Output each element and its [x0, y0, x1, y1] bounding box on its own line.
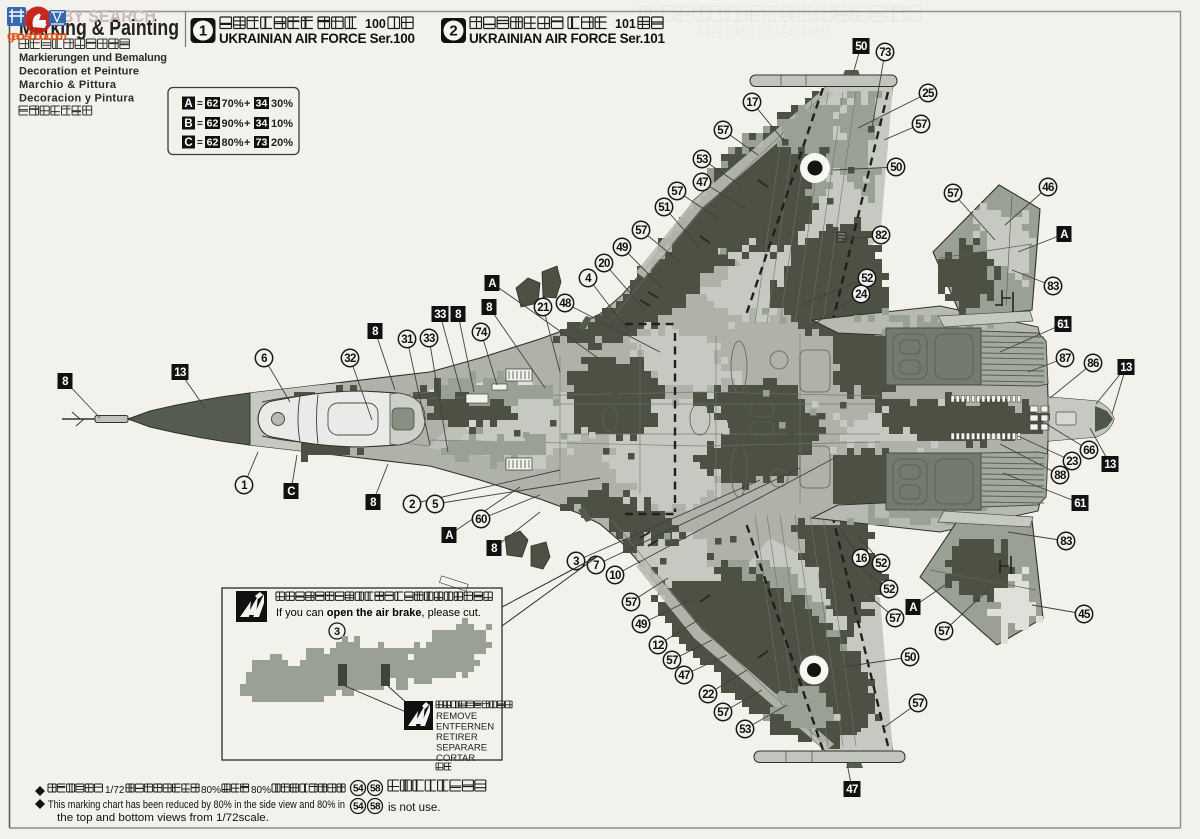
svg-text:B: B [184, 118, 192, 130]
svg-text:87: 87 [1059, 353, 1071, 365]
svg-text:C: C [287, 486, 295, 498]
svg-text:57: 57 [671, 186, 683, 198]
svg-text:This marking chart has been re: This marking chart has been reduced by 8… [48, 799, 345, 811]
svg-text:32: 32 [344, 353, 356, 365]
svg-text:25: 25 [922, 88, 935, 100]
svg-text:57: 57 [889, 613, 901, 625]
svg-text:31: 31 [401, 334, 414, 346]
svg-text:Decoration et Peinture: Decoration et Peinture [19, 66, 139, 78]
svg-text:48: 48 [559, 298, 572, 310]
svg-text:61: 61 [1074, 498, 1087, 510]
svg-text:57: 57 [938, 626, 950, 638]
svg-text:66: 66 [1083, 445, 1095, 457]
svg-text:UKRAINIAN AIR FORCE Ser.101: UKRAINIAN AIR FORCE Ser.101 [469, 31, 665, 46]
svg-text:50: 50 [890, 162, 902, 174]
svg-text:Marchio & Pittura: Marchio & Pittura [19, 79, 117, 91]
svg-text:52: 52 [875, 558, 887, 570]
svg-text:47: 47 [678, 670, 690, 682]
svg-text:58: 58 [370, 802, 381, 813]
svg-text:gao-shou.com: gao-shou.com [7, 29, 67, 43]
svg-text:10%: 10% [271, 118, 293, 130]
svg-text:+: + [244, 98, 250, 110]
svg-text:47: 47 [846, 784, 858, 796]
svg-text:34: 34 [256, 118, 268, 130]
svg-text:86: 86 [1087, 358, 1099, 370]
svg-text:+: + [244, 137, 250, 149]
svg-text:13: 13 [1120, 362, 1132, 374]
svg-text:12: 12 [652, 640, 664, 652]
svg-text:UKRAINIAN AIR FORCE Ser.100: UKRAINIAN AIR FORCE Ser.100 [219, 31, 415, 46]
svg-text:52: 52 [883, 584, 895, 596]
svg-text:22: 22 [702, 689, 714, 701]
svg-text:88: 88 [1054, 470, 1067, 482]
svg-text:54: 54 [353, 802, 364, 813]
svg-text:33: 33 [434, 309, 446, 321]
svg-text:82: 82 [875, 230, 887, 242]
svg-text:16: 16 [855, 553, 867, 565]
svg-text:45: 45 [1078, 609, 1091, 621]
svg-text:57: 57 [912, 698, 924, 710]
svg-text:49: 49 [616, 242, 628, 254]
svg-text:If you can open the air brake,: If you can open the air brake, please cu… [276, 607, 481, 619]
svg-text:50: 50 [904, 652, 916, 664]
svg-text:24: 24 [855, 289, 868, 301]
svg-text:=: = [197, 99, 203, 110]
svg-text:Decoracion y Pintura: Decoracion y Pintura [19, 93, 135, 105]
svg-text:53: 53 [696, 154, 708, 166]
svg-text:CORTAR: CORTAR [436, 753, 475, 764]
svg-text:20: 20 [598, 258, 610, 270]
svg-text:A: A [184, 98, 192, 110]
svg-text:83: 83 [1047, 281, 1059, 293]
svg-text:90%: 90% [222, 118, 244, 130]
svg-text:100: 100 [365, 17, 386, 31]
svg-text:60: 60 [475, 514, 487, 526]
svg-text:62: 62 [207, 118, 219, 130]
svg-text:2: 2 [449, 23, 457, 40]
svg-text:57: 57 [666, 655, 678, 667]
svg-text:34: 34 [256, 98, 268, 110]
svg-text:REMOVE: REMOVE [436, 711, 477, 722]
svg-text:A: A [1060, 229, 1068, 241]
svg-text:7: 7 [593, 560, 599, 572]
svg-text:23: 23 [1066, 456, 1078, 468]
svg-text:30%: 30% [271, 98, 293, 110]
svg-text:80%: 80% [201, 785, 221, 796]
svg-text:3: 3 [334, 626, 340, 638]
svg-text:49: 49 [635, 619, 647, 631]
svg-text:the top and bottom views from: the top and bottom views from 1/72scale. [57, 812, 269, 824]
svg-text:57: 57 [717, 125, 729, 137]
svg-text:20%: 20% [271, 137, 293, 149]
svg-text:83: 83 [1060, 536, 1072, 548]
svg-text:57: 57 [947, 188, 959, 200]
svg-text:62: 62 [207, 98, 219, 110]
svg-text:2: 2 [409, 499, 415, 511]
svg-text:+: + [244, 118, 250, 130]
svg-text:74: 74 [475, 327, 488, 339]
svg-text:57: 57 [915, 119, 927, 131]
svg-text:61: 61 [1057, 319, 1070, 331]
svg-text:C: C [184, 137, 192, 149]
svg-text:=: = [197, 138, 203, 149]
svg-text:80%: 80% [251, 785, 271, 796]
svg-text:47: 47 [696, 177, 708, 189]
svg-text:54: 54 [353, 784, 364, 795]
svg-text:57: 57 [625, 597, 637, 609]
svg-text:1: 1 [199, 23, 207, 40]
svg-text:13: 13 [1104, 459, 1116, 471]
svg-text:70%: 70% [222, 98, 244, 110]
svg-text:A: A [445, 530, 453, 542]
svg-text:10: 10 [609, 570, 621, 582]
svg-text:46: 46 [1042, 182, 1054, 194]
svg-text:50: 50 [855, 41, 867, 53]
svg-text:80%: 80% [222, 137, 244, 149]
svg-text:33: 33 [423, 333, 435, 345]
svg-text:73: 73 [879, 47, 891, 59]
svg-text:53: 53 [739, 724, 751, 736]
svg-text:A: A [488, 278, 496, 290]
svg-text:ENTFERNEN: ENTFERNEN [436, 722, 494, 733]
svg-text:57: 57 [717, 707, 729, 719]
svg-text:73: 73 [256, 137, 268, 149]
svg-text:17: 17 [746, 97, 758, 109]
svg-text:=: = [197, 119, 203, 130]
svg-text:21: 21 [537, 302, 550, 314]
svg-text:13: 13 [174, 367, 186, 379]
svg-text:58: 58 [370, 784, 381, 795]
svg-text:is not use.: is not use. [388, 802, 440, 814]
svg-text:RETIRER: RETIRER [436, 732, 478, 743]
svg-text:52: 52 [861, 273, 873, 285]
svg-text:1/72: 1/72 [105, 785, 125, 796]
svg-text:62: 62 [207, 137, 219, 149]
svg-text:A: A [909, 602, 917, 614]
svg-text:Markierungen und Bemalung: Markierungen und Bemalung [19, 52, 167, 64]
svg-text:101: 101 [615, 17, 636, 31]
svg-text:6: 6 [261, 353, 267, 365]
svg-text:51: 51 [658, 202, 671, 214]
svg-text:SEPARARE: SEPARARE [436, 743, 487, 754]
svg-text:57: 57 [635, 225, 647, 237]
